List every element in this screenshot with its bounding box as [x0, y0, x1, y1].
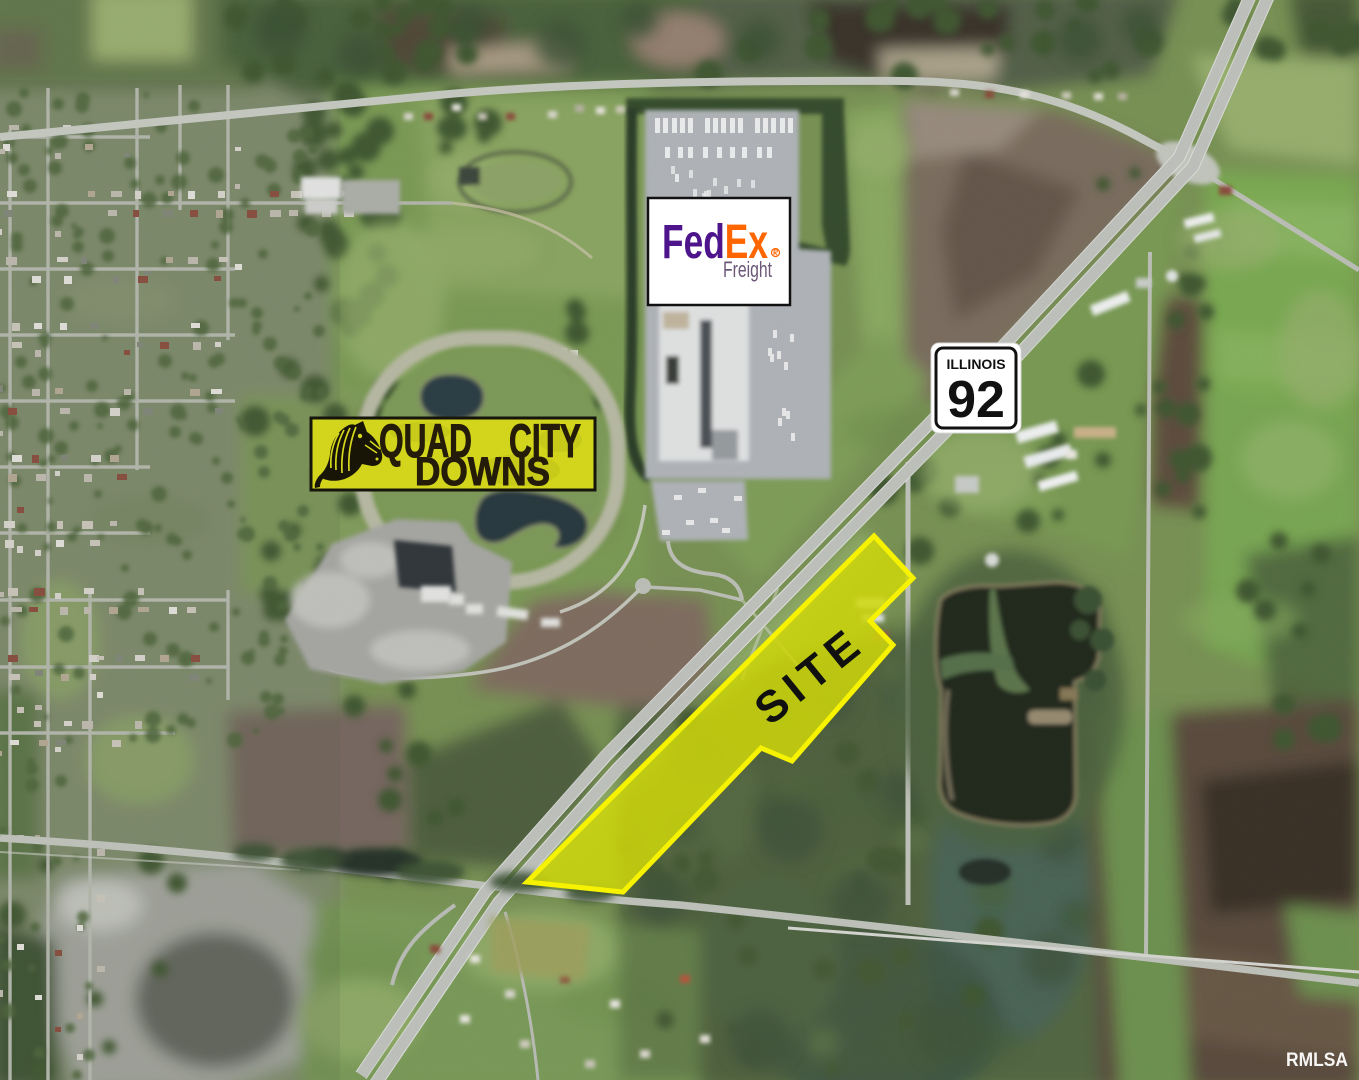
svg-text:92: 92: [947, 371, 1005, 429]
svg-text:Freight: Freight: [723, 257, 772, 282]
svg-text:DOWNS: DOWNS: [415, 450, 550, 494]
svg-text:ILLINOIS: ILLINOIS: [946, 356, 1005, 372]
svg-text:RMLSA: RMLSA: [1286, 1050, 1348, 1071]
